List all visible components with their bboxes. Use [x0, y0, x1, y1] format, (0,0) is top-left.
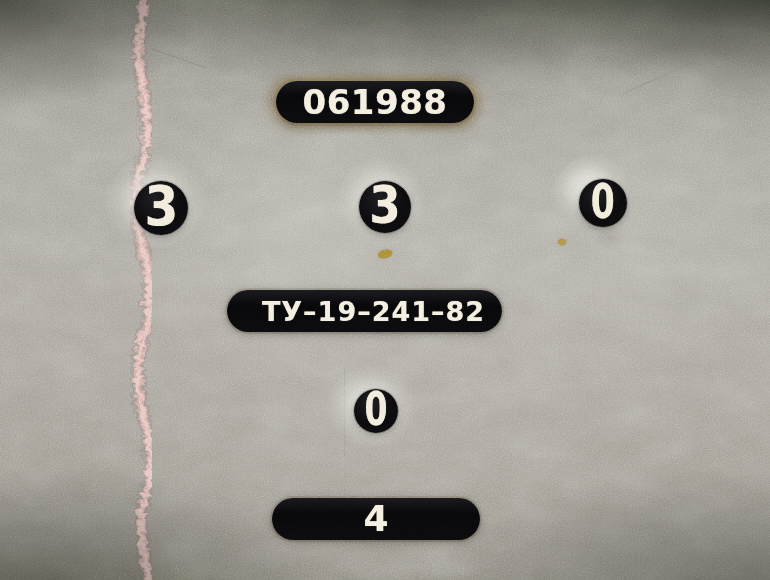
serial-number-text: 061988 — [303, 85, 448, 119]
counter-badge-right: 0 — [579, 179, 627, 227]
counter-digit: 3 — [369, 179, 400, 231]
scratch-mark — [623, 63, 691, 94]
counter-badge-lower: 0 — [354, 389, 398, 433]
serial-number-plate: 061988 — [276, 81, 474, 123]
counter-digit: 0 — [364, 386, 387, 432]
counter-digit: 3 — [144, 178, 178, 234]
spec-plate-text: ТУ–19–241–82 — [262, 298, 485, 325]
spec-plate: ТУ–19–241–82 — [227, 290, 502, 332]
metal-panel-photo: 061988 3 3 0 ТУ–19–241–82 0 4 — [0, 0, 770, 580]
brass-fleck — [557, 238, 566, 246]
counter-digit: 0 — [591, 177, 615, 225]
brass-fleck — [378, 249, 393, 259]
index-plate: 4 — [272, 498, 480, 540]
counter-badge-middle: 3 — [359, 181, 411, 233]
scratch-mark — [151, 49, 206, 69]
index-plate-text: 4 — [363, 501, 388, 537]
scratch-mark — [344, 368, 345, 456]
counter-badge-left: 3 — [134, 181, 188, 235]
